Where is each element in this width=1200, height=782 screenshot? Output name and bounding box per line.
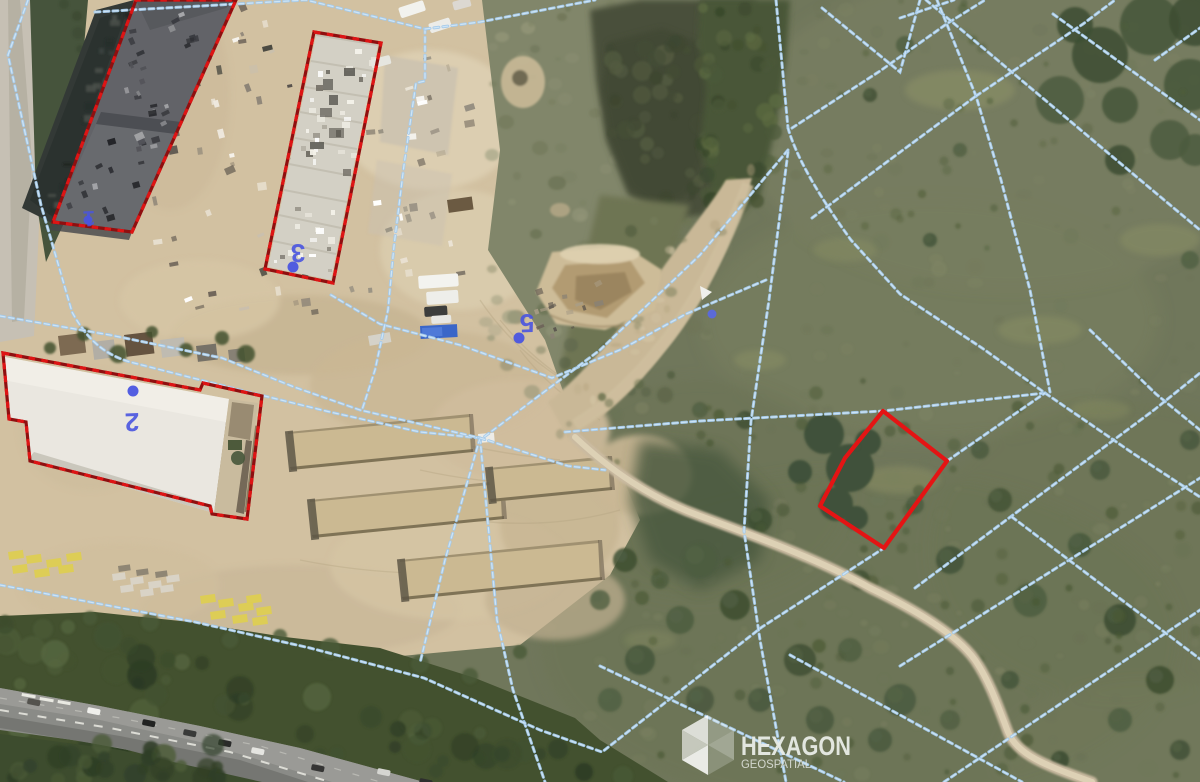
svg-text:2: 2: [124, 407, 140, 437]
svg-text:GEOSPATIAL: GEOSPATIAL: [741, 757, 811, 771]
